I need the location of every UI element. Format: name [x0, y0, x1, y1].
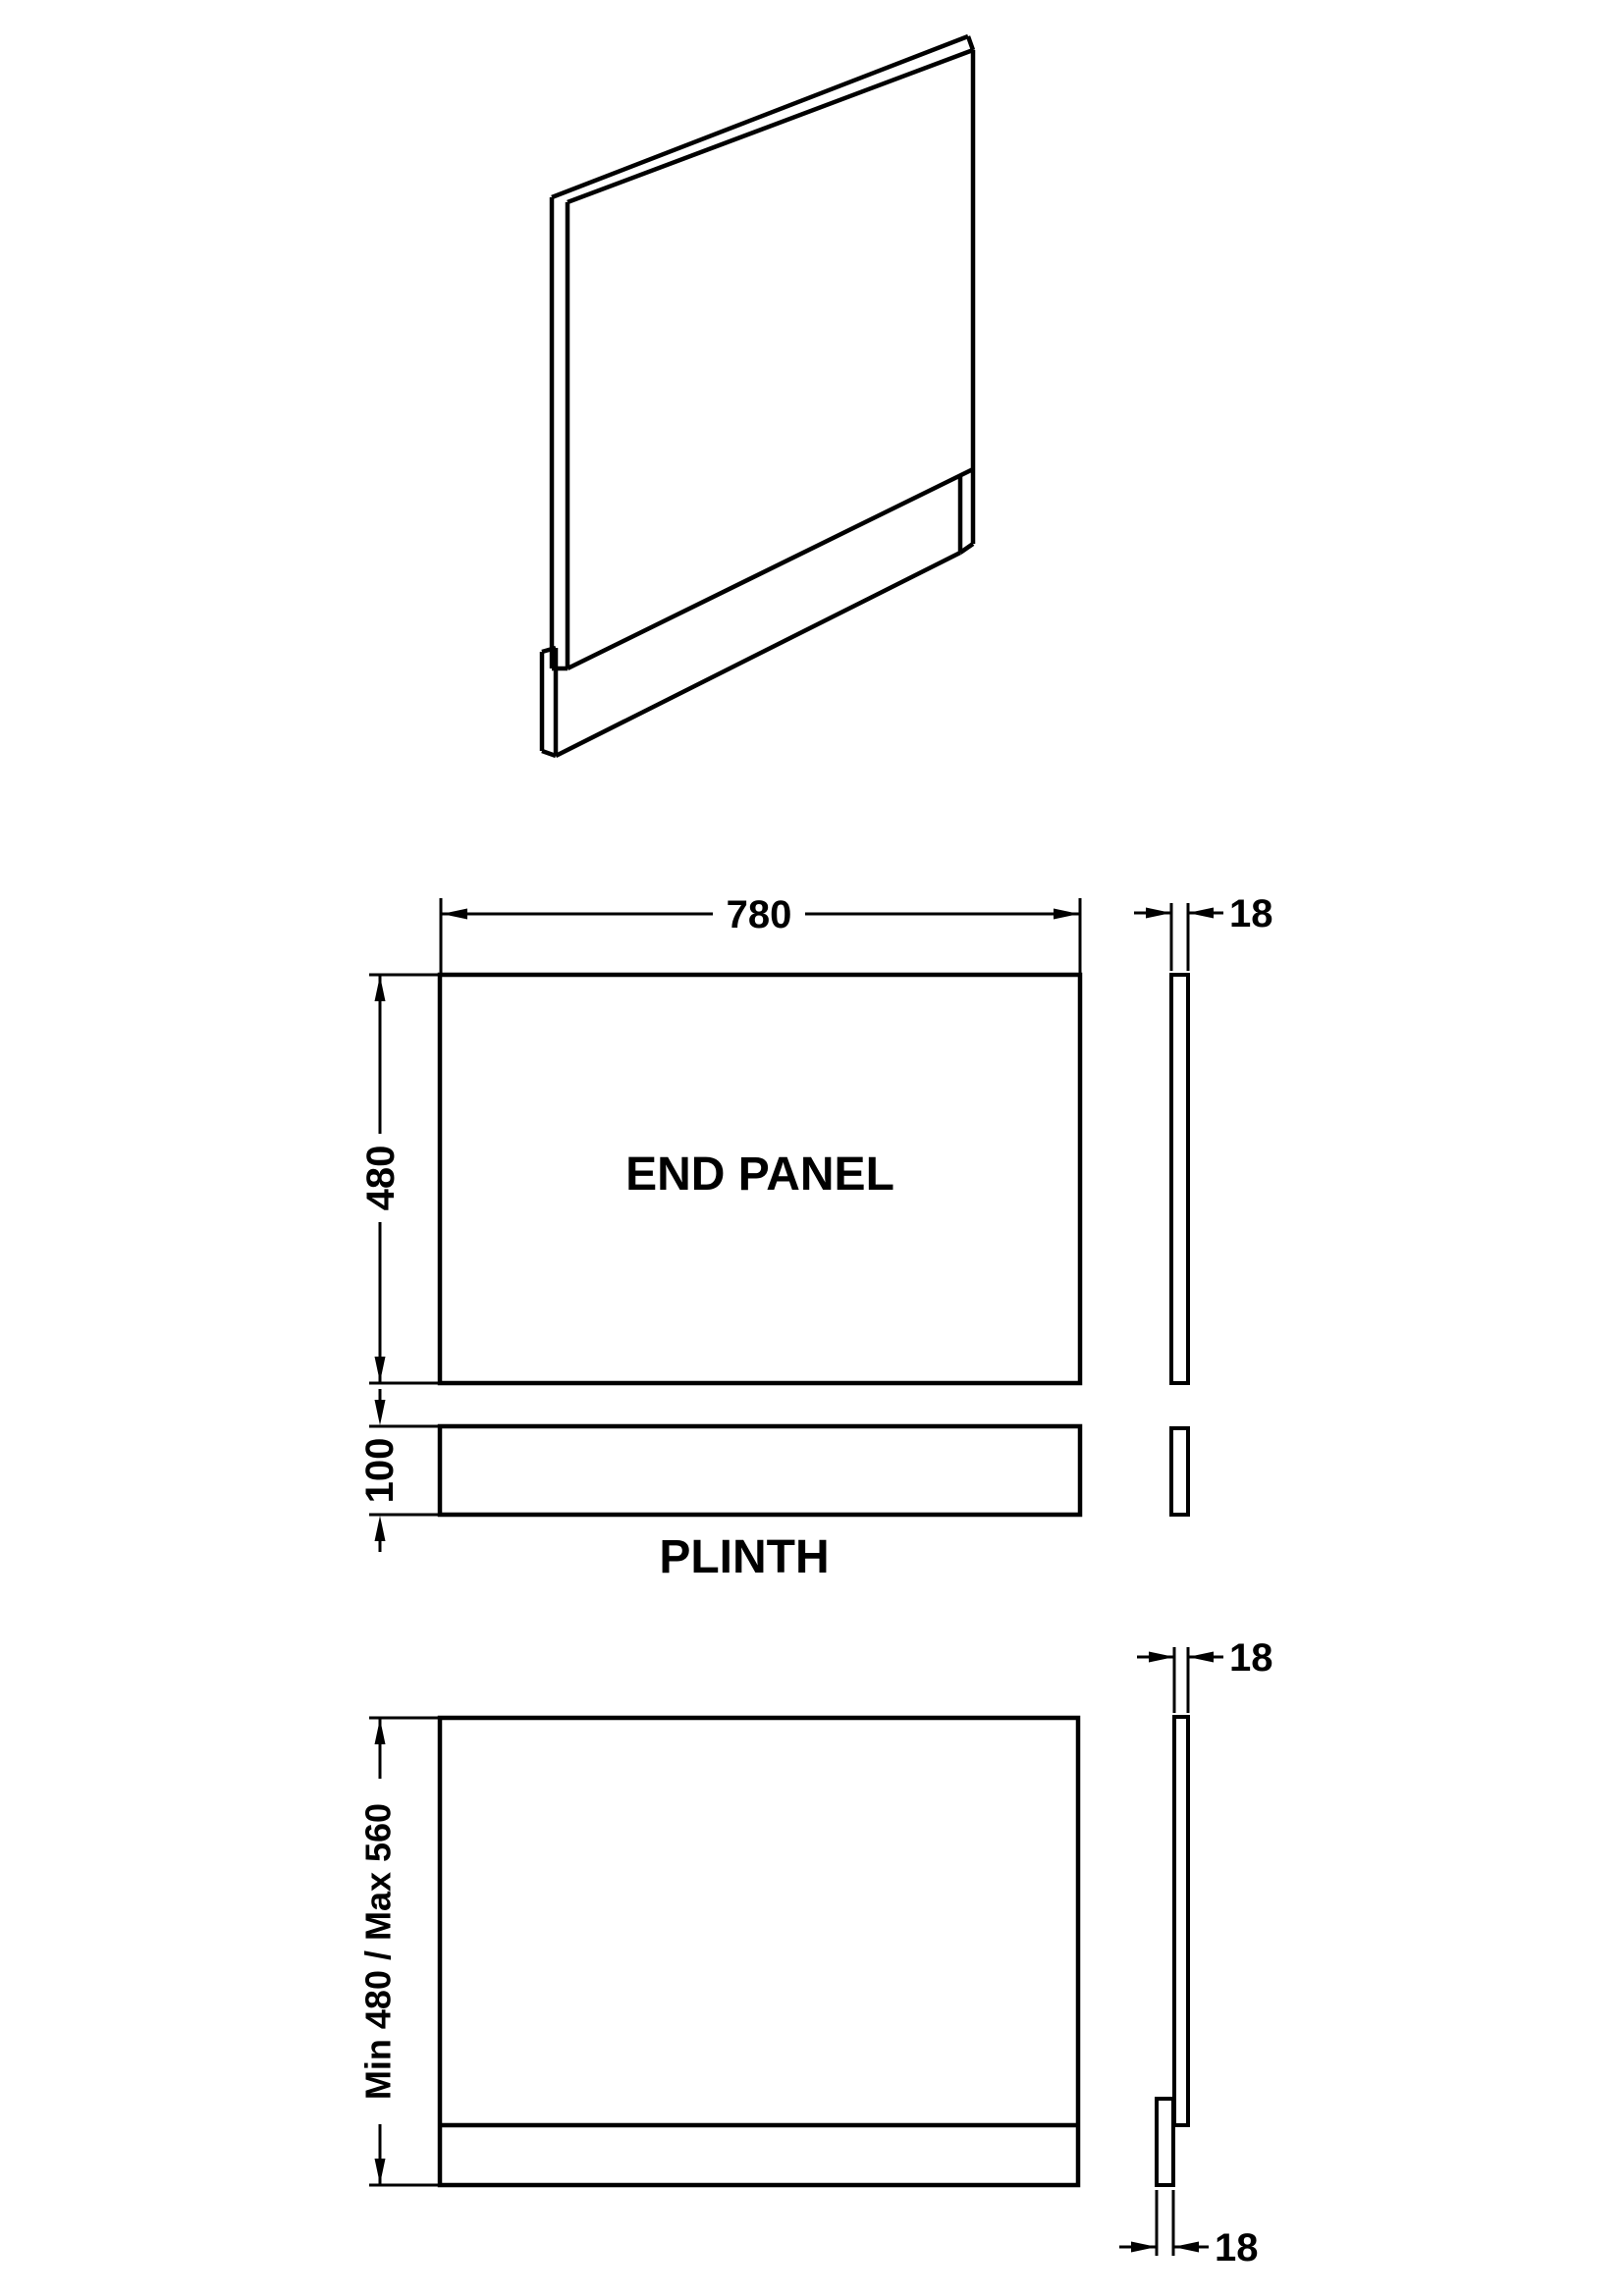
- arrow-down-icon: [375, 2159, 386, 2184]
- dim-overall-height-label: Min 480 / Max 560: [358, 1803, 399, 2100]
- arrow-right-icon: [1146, 908, 1171, 919]
- arrow-right-icon: [1149, 1652, 1174, 1663]
- dim-panel-width-label: 780: [727, 893, 792, 936]
- dim-panel-height: 480: [359, 975, 440, 1383]
- arrow-right-icon: [1054, 909, 1079, 920]
- front-view: END PANEL 780 480: [359, 893, 1080, 1383]
- dim-panel-width: 780: [441, 893, 1080, 975]
- arrow-left-icon: [1188, 908, 1214, 919]
- perspective-view: [542, 36, 973, 756]
- arrow-up-icon: [375, 1516, 386, 1541]
- arrow-up-icon: [375, 976, 386, 1001]
- dim-panel-thickness: 18: [1134, 892, 1273, 971]
- dim-assembled-panel-thickness: 18: [1137, 1636, 1273, 1713]
- panel-3d-back-top-edge: [552, 36, 968, 197]
- dim-plinth-height-label: 100: [358, 1438, 402, 1504]
- assembled-view: Min 480 / Max 560 18: [358, 1636, 1273, 2269]
- arrow-down-icon: [375, 1400, 386, 1425]
- dim-plinth-height: 100: [358, 1389, 440, 1552]
- plinth-view: PLINTH 100: [358, 1389, 1080, 1583]
- drawing-page: END PANEL 780 480: [0, 0, 1623, 2296]
- panel-3d-bottom-edge: [568, 469, 973, 668]
- technical-drawing: END PANEL 780 480: [0, 0, 1623, 2296]
- arrow-up-icon: [375, 1719, 386, 1744]
- dim-panel-height-label: 480: [359, 1146, 403, 1211]
- panel-3d-top-right-cap: [968, 36, 973, 50]
- arrow-left-icon: [1188, 1652, 1214, 1663]
- dim-panel-thickness-label: 18: [1229, 892, 1273, 935]
- plinth-edge-outline: [1171, 1428, 1188, 1515]
- panel-edge-outline: [1171, 975, 1188, 1383]
- panel-3d-front-top-edge: [568, 50, 973, 202]
- assembled-outline: [440, 1718, 1078, 2185]
- arrow-left-icon: [442, 909, 467, 920]
- arrow-right-icon: [1131, 2242, 1157, 2253]
- dim-assembled-plinth-thickness: 18: [1119, 2190, 1259, 2269]
- assembled-plinth-edge-outline: [1157, 2099, 1173, 2185]
- arrow-left-icon: [1173, 2242, 1199, 2253]
- side-view: 18: [1134, 892, 1273, 1515]
- dim-assembled-plinth-thickness-label: 18: [1215, 2226, 1259, 2269]
- plinth-label: PLINTH: [659, 1531, 829, 1583]
- plinth-3d-bottom-edge: [556, 553, 960, 756]
- assembled-panel-edge-outline: [1174, 1717, 1188, 2125]
- dim-overall-height: Min 480 / Max 560: [358, 1718, 440, 2185]
- end-panel-label: END PANEL: [625, 1148, 894, 1201]
- arrow-down-icon: [375, 1357, 386, 1382]
- dim-assembled-panel-thickness-label: 18: [1229, 1636, 1273, 1680]
- assembled-side-view: 18 18: [1119, 1636, 1273, 2269]
- plinth-outline: [440, 1426, 1080, 1515]
